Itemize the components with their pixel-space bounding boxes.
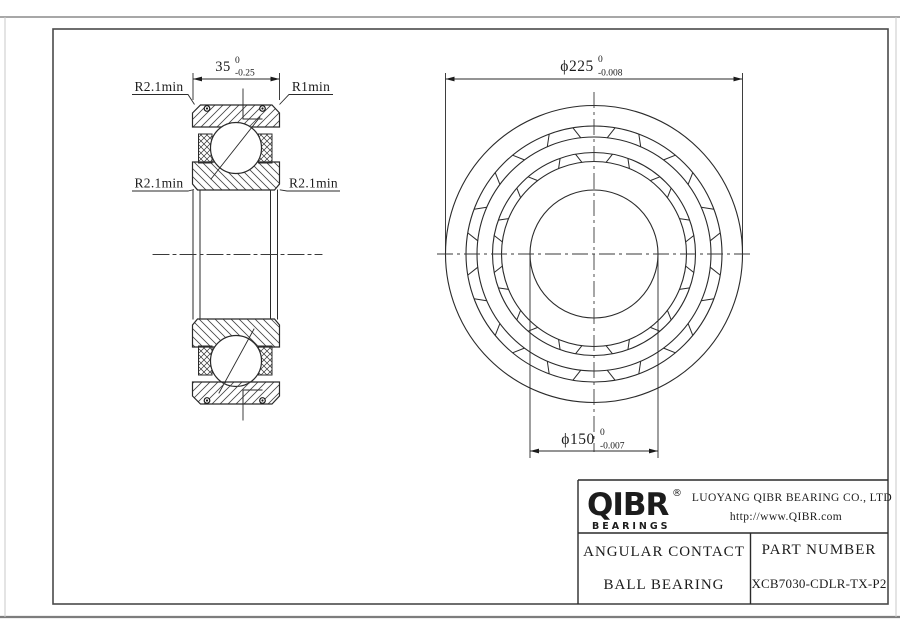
bearing-front-view <box>437 92 752 452</box>
company-name: LUOYANG QIBR BEARING CO., LTD <box>692 492 892 504</box>
width-dim-tol-upper: 0 <box>235 56 240 66</box>
part-number-value: XCB7030-CDLR-TX-P2 <box>751 576 886 591</box>
width-dim-tol-lower: -0.25 <box>235 69 255 79</box>
fillet-label-mid-right: R2.1min <box>289 176 338 191</box>
fillet-label-top-left: R2.1min <box>135 79 184 94</box>
bearing-drawing-canvas: 35 0 -0.25 R2.1min R1min R2.1min R2.1min… <box>0 0 900 636</box>
registered-trademark-icon: ® <box>672 488 682 499</box>
product-name-line1: ANGULAR CONTACT <box>583 544 745 560</box>
logo-subtitle: BEARINGS <box>592 521 671 532</box>
qibr-logo: QIBR <box>587 487 670 523</box>
bore-dim-tol-lower: -0.007 <box>600 442 625 452</box>
title-block: QIBR ® BEARINGS LUOYANG QIBR BEARING CO.… <box>578 480 892 604</box>
od-dim-tol-upper: 0 <box>598 55 603 65</box>
bore-dim-tol-upper: 0 <box>600 428 605 438</box>
page-border <box>0 17 900 617</box>
od-dim-tol-lower: -0.008 <box>598 69 623 79</box>
width-dim-value: 35 <box>215 59 231 75</box>
fillet-label-top-right: R1min <box>292 79 330 94</box>
bearing-section-view <box>153 89 322 420</box>
fillet-label-mid-left: R2.1min <box>135 176 184 191</box>
bore-dim-value: ϕ150 <box>561 431 594 448</box>
product-name-line2: BALL BEARING <box>603 577 724 593</box>
drawing-page: 35 0 -0.25 R2.1min R1min R2.1min R2.1min… <box>0 0 900 636</box>
od-dim-value: ϕ225 <box>560 58 593 75</box>
part-number-label: PART NUMBER <box>762 542 877 558</box>
company-website: http://www.QIBR.com <box>730 511 842 523</box>
